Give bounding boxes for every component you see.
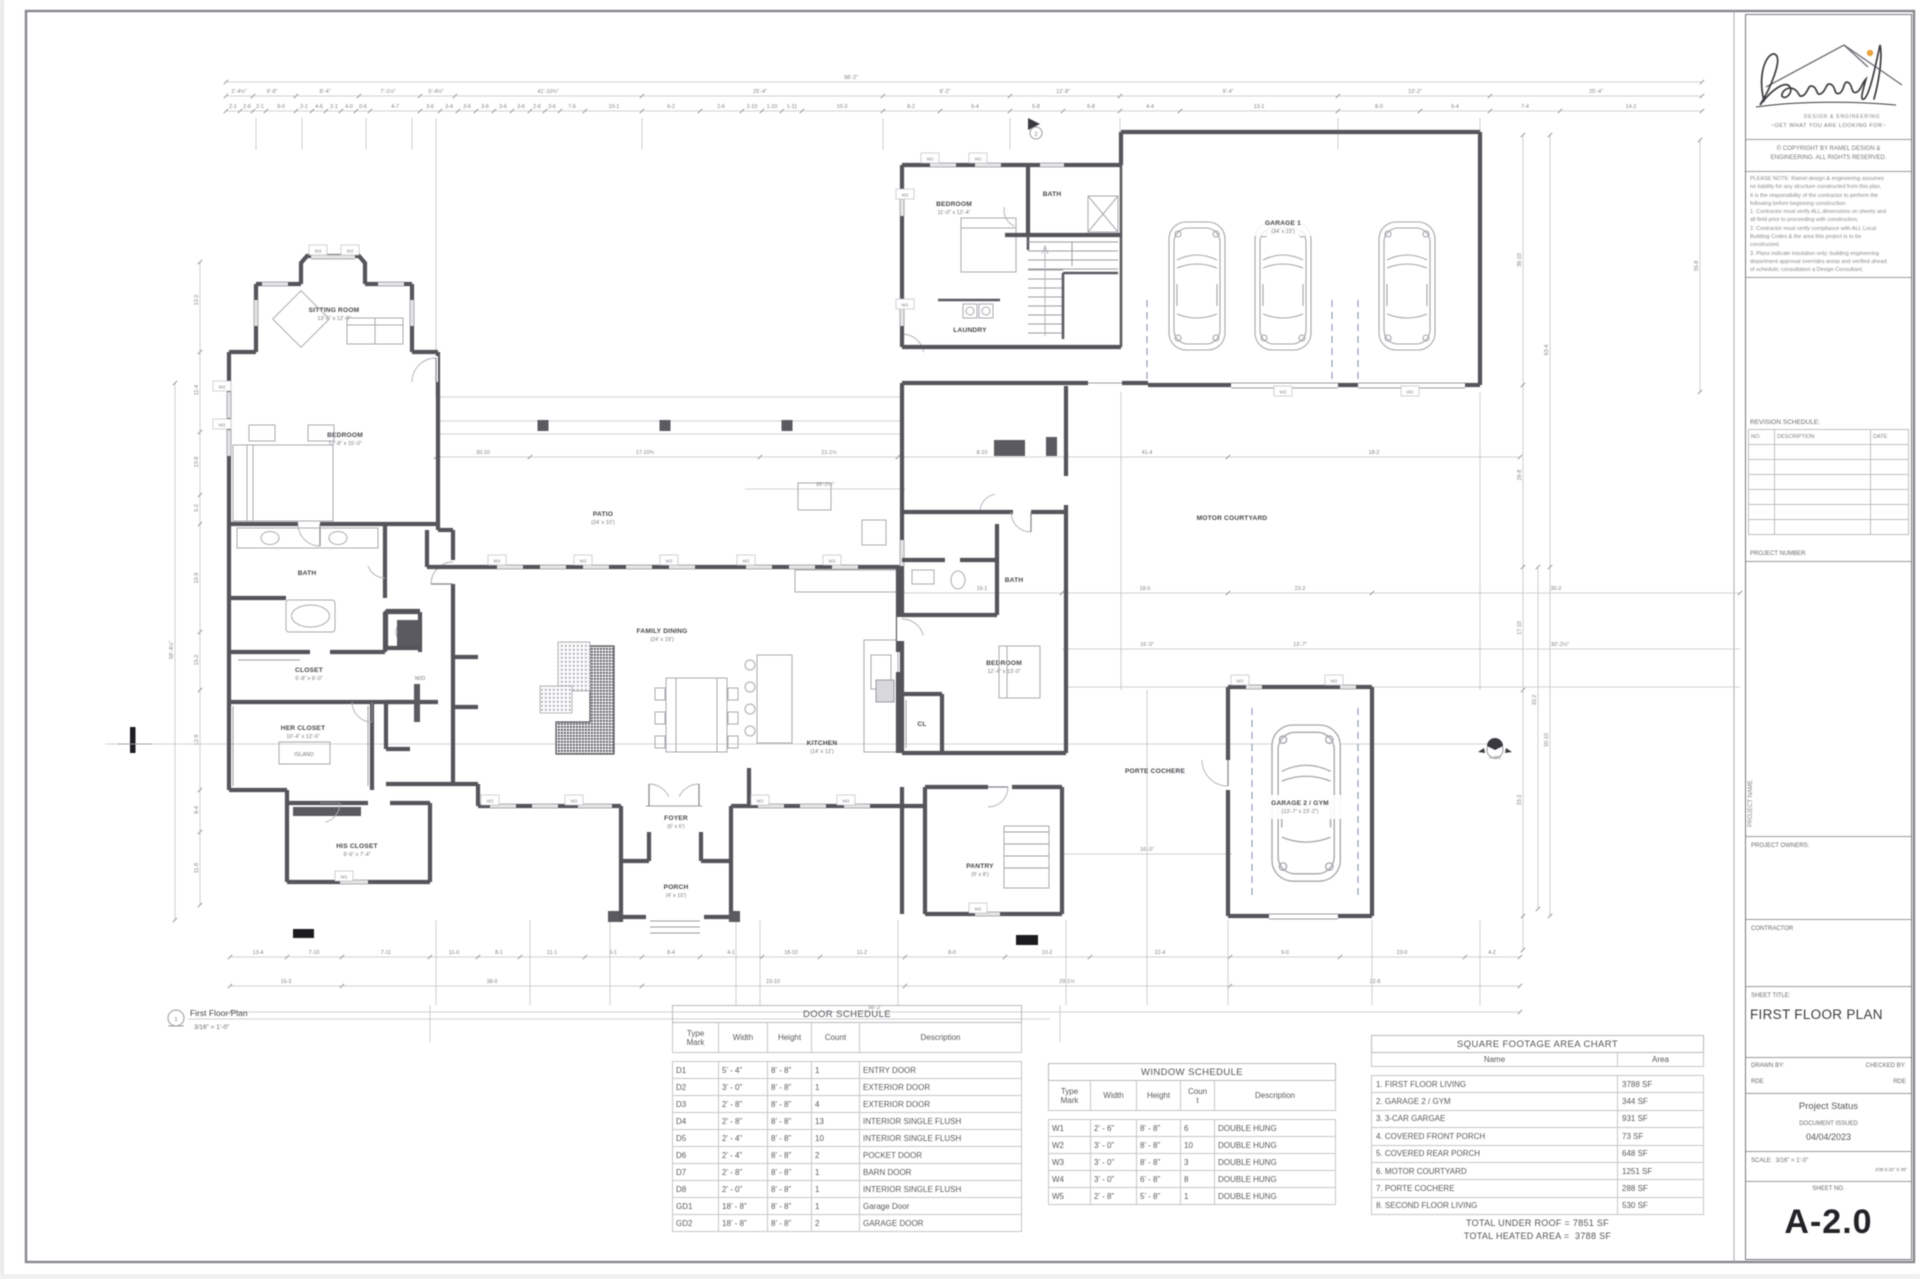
svg-text:MOTOR COURTYARD: MOTOR COURTYARD [1197, 515, 1268, 522]
svg-text:38-0: 38-0 [487, 979, 498, 985]
svg-text:41-4: 41-4 [1142, 450, 1153, 456]
svg-text:41’-10¾”: 41’-10¾” [537, 89, 558, 95]
svg-text:4-0: 4-0 [345, 104, 353, 110]
svg-text:4-7: 4-7 [391, 104, 399, 110]
svg-text:10-9: 10-9 [194, 573, 200, 584]
svg-text:2-6: 2-6 [243, 104, 251, 110]
svg-text:7’-1½”: 7’-1½” [380, 88, 395, 95]
svg-text:6-8: 6-8 [1087, 104, 1095, 110]
svg-text:W2: W2 [1237, 679, 1244, 684]
svg-text:15-3: 15-3 [281, 979, 292, 985]
svg-text:2: 2 [1035, 132, 1038, 138]
svg-text:BATH: BATH [1043, 191, 1062, 198]
svg-text:3-4: 3-4 [445, 104, 453, 110]
svg-text:W2: W2 [829, 559, 836, 564]
svg-text:8-1: 8-1 [495, 950, 503, 956]
svg-text:8-2: 8-2 [907, 104, 915, 110]
svg-text:18-2: 18-2 [1369, 450, 1380, 456]
svg-text:(24’ x 10’): (24’ x 10’) [591, 520, 615, 526]
svg-text:18-0: 18-0 [1140, 586, 1151, 592]
svg-text:29-1½: 29-1½ [1059, 978, 1075, 985]
svg-text:3-6: 3-6 [548, 104, 556, 110]
svg-text:13-8: 13-8 [194, 457, 200, 468]
svg-text:10-3: 10-3 [837, 104, 848, 110]
svg-text:16’-0”: 16’-0” [1140, 642, 1154, 648]
svg-text:98’-2”: 98’-2” [844, 75, 858, 81]
svg-text:1-11: 1-11 [787, 104, 797, 110]
svg-text:W2: W2 [1331, 679, 1338, 684]
svg-text:22-4: 22-4 [1155, 950, 1166, 956]
svg-text:CL: CL [917, 721, 926, 728]
svg-text:13’-7”: 13’-7” [1293, 642, 1307, 648]
svg-text:(24’ x 19’): (24’ x 19’) [650, 637, 674, 643]
svg-text:7-11: 7-11 [381, 950, 391, 956]
svg-text:15-2: 15-2 [194, 655, 200, 666]
svg-text:13-2: 13-2 [194, 295, 200, 306]
svg-text:7-4: 7-4 [1521, 104, 1529, 110]
svg-text:18-10: 18-10 [784, 950, 798, 956]
svg-text:W2: W2 [219, 385, 226, 390]
svg-text:1-10: 1-10 [767, 104, 778, 110]
svg-text:W2: W2 [580, 559, 587, 564]
svg-text:6-4: 6-4 [1451, 104, 1459, 110]
svg-text:2-1: 2-1 [300, 104, 308, 110]
svg-text:8-10: 8-10 [977, 450, 988, 456]
svg-text:W2: W2 [927, 157, 934, 162]
svg-text:36-10: 36-10 [1517, 253, 1523, 267]
svg-text:1: 1 [175, 1017, 178, 1023]
svg-text:DESIGN & ENGINEERING: DESIGN & ENGINEERING [1804, 114, 1880, 120]
svg-text:3-6: 3-6 [517, 104, 525, 110]
svg-text:22-8: 22-8 [1370, 979, 1381, 985]
svg-text:8-0: 8-0 [948, 950, 956, 956]
svg-text:2-1: 2-1 [330, 104, 338, 110]
svg-text:35-8: 35-8 [1694, 261, 1700, 272]
svg-text:W2: W2 [219, 423, 226, 428]
svg-text:W2: W2 [1280, 390, 1287, 395]
svg-text:30’-2½”: 30’-2½” [1551, 641, 1569, 648]
svg-text:GARAGE 1: GARAGE 1 [1265, 220, 1301, 227]
svg-text:10-2: 10-2 [1042, 950, 1053, 956]
svg-text:17-10: 17-10 [1517, 621, 1523, 635]
svg-text:(5’ x 6’): (5’ x 6’) [667, 824, 685, 830]
svg-text:LAUNDRY: LAUNDRY [953, 327, 987, 334]
svg-text:(34’ x 23’): (34’ x 23’) [1271, 229, 1295, 235]
svg-text:PANTRY: PANTRY [966, 863, 994, 870]
svg-text:8’-4”: 8’-4” [320, 89, 331, 95]
svg-text:26-8: 26-8 [1517, 470, 1523, 481]
svg-text:W2: W2 [1407, 390, 1414, 395]
svg-text:BEDROOM: BEDROOM [327, 432, 363, 439]
svg-text:8’-2”: 8’-2” [940, 89, 951, 95]
svg-text:25’-4”: 25’-4” [753, 89, 767, 95]
svg-text:11’-0” x 12’-4”: 11’-0” x 12’-4” [938, 210, 971, 216]
svg-text:BEDROOM: BEDROOM [986, 660, 1022, 667]
svg-text:KITCHEN: KITCHEN [807, 740, 838, 747]
svg-text:W2: W2 [743, 559, 750, 564]
svg-text:25’-4”: 25’-4” [1589, 89, 1603, 95]
svg-text:GARAGE 2 / GYM: GARAGE 2 / GYM [1271, 800, 1329, 807]
svg-text:11-8: 11-8 [194, 863, 200, 873]
svg-text:21-1½: 21-1½ [821, 449, 837, 456]
svg-text:13-4: 13-4 [253, 950, 264, 956]
svg-text:8-0: 8-0 [1375, 104, 1383, 110]
svg-text:W2: W2 [975, 157, 982, 162]
svg-text:5-2: 5-2 [194, 504, 200, 512]
svg-text:13’-2”: 13’-2” [1408, 89, 1422, 95]
svg-text:2-1: 2-1 [229, 104, 237, 110]
svg-text:W2: W2 [347, 249, 354, 254]
svg-text:12’-4” x 13’-0”: 12’-4” x 13’-0” [987, 669, 1020, 675]
svg-text:W/D: W/D [415, 676, 426, 682]
svg-text:(9’ x 8’): (9’ x 8’) [971, 872, 989, 878]
svg-text:3-6: 3-6 [481, 104, 489, 110]
svg-text:16-1: 16-1 [977, 586, 988, 592]
svg-text:10-1: 10-1 [609, 104, 620, 110]
svg-text:30-10: 30-10 [476, 450, 490, 456]
svg-text:2-10: 2-10 [747, 104, 758, 110]
svg-text:8-4: 8-4 [667, 950, 675, 956]
svg-text:9’-4”: 9’-4” [1223, 89, 1234, 95]
svg-text:58’-4½”: 58’-4½” [168, 641, 175, 659]
svg-text:36’-2½”: 36’-2½” [816, 481, 834, 488]
svg-text:BEDROOM: BEDROOM [936, 201, 972, 208]
svg-text:6-4: 6-4 [971, 104, 979, 110]
svg-text:7-6: 7-6 [568, 104, 576, 110]
svg-text:11-1: 11-1 [547, 950, 557, 956]
svg-text:BATH: BATH [1005, 577, 1024, 584]
svg-text:FAMILY DINING: FAMILY DINING [637, 628, 688, 635]
svg-text:(4’ x 10’): (4’ x 10’) [666, 893, 687, 899]
svg-text:23-2: 23-2 [1295, 586, 1306, 592]
svg-text:ISLAND: ISLAND [294, 752, 314, 758]
svg-text:W2: W2 [341, 875, 348, 880]
svg-text:6-2: 6-2 [667, 104, 675, 110]
svg-text:2-6: 2-6 [533, 104, 541, 110]
svg-text:W2: W2 [666, 559, 673, 564]
svg-text:HIS CLOSET: HIS CLOSET [336, 843, 378, 850]
svg-text:4-4: 4-4 [1146, 104, 1154, 110]
svg-text:23-10: 23-10 [766, 979, 780, 985]
svg-text:W2: W2 [902, 303, 909, 308]
svg-text:2-6: 2-6 [717, 104, 725, 110]
svg-text:W2: W2 [315, 249, 322, 254]
svg-text:W2: W2 [757, 799, 764, 804]
svg-text:FOYER: FOYER [664, 815, 688, 822]
svg-text:BATH: BATH [298, 570, 317, 577]
svg-text:SITTING ROOM: SITTING ROOM [309, 307, 360, 314]
svg-text:PORCH: PORCH [664, 884, 689, 891]
svg-text:2’-4½”: 2’-4½” [231, 88, 246, 95]
svg-text:11-2: 11-2 [857, 950, 867, 956]
svg-text:11-4: 11-4 [194, 385, 200, 395]
svg-text:23-0: 23-0 [1397, 950, 1408, 956]
svg-text:(14’ x 12’): (14’ x 12’) [810, 749, 834, 755]
svg-text:W2: W2 [843, 799, 850, 804]
svg-text:W2: W2 [487, 799, 494, 804]
svg-text:11-0: 11-0 [449, 950, 459, 956]
svg-text:3-6: 3-6 [463, 104, 471, 110]
svg-text:5’-4½”: 5’-4½” [428, 88, 443, 95]
svg-text:PATIO: PATIO [593, 511, 613, 518]
svg-text:W2: W2 [571, 799, 578, 804]
svg-text:50-10: 50-10 [1544, 733, 1550, 747]
svg-text:4-2: 4-2 [1488, 950, 1496, 956]
svg-text:5-8: 5-8 [1032, 104, 1040, 110]
svg-text:13-1: 13-1 [1254, 104, 1265, 110]
svg-text:3-6: 3-6 [499, 104, 507, 110]
svg-text:W2: W2 [902, 193, 909, 198]
svg-text:9-0: 9-0 [277, 104, 285, 110]
svg-text:4-6: 4-6 [315, 104, 323, 110]
svg-text:5’-8” x 6’-0”: 5’-8” x 6’-0” [295, 676, 322, 682]
svg-text:PORTE COCHERE: PORTE COCHERE [1125, 768, 1186, 775]
svg-text:0-6: 0-6 [359, 104, 367, 110]
svg-text:HER CLOSET: HER CLOSET [281, 725, 326, 732]
svg-text:13’-6” x 12’-0”: 13’-6” x 12’-0” [317, 316, 350, 322]
svg-text:8-4: 8-4 [194, 806, 200, 814]
svg-text:W2: W2 [494, 559, 501, 564]
svg-text:4-1: 4-1 [727, 950, 735, 956]
svg-text:A-202: A-202 [1489, 755, 1502, 760]
svg-text:2-1: 2-1 [256, 104, 264, 110]
svg-text:7-10: 7-10 [309, 950, 320, 956]
svg-text:3/16” = 1’-0”: 3/16” = 1’-0” [194, 1024, 229, 1031]
svg-text:33-2: 33-2 [1532, 695, 1538, 706]
svg-text:3-6: 3-6 [426, 104, 434, 110]
svg-text:CLOSET: CLOSET [295, 667, 323, 674]
svg-text:(13’-7” x 23’-2”): (13’-7” x 23’-2”) [1282, 809, 1319, 815]
svg-text:9’-8”: 9’-8” [267, 89, 278, 95]
svg-text:9-0: 9-0 [1281, 950, 1289, 956]
svg-text:12’-8”: 12’-8” [1056, 89, 1070, 95]
svg-text:17-10¾: 17-10¾ [636, 450, 655, 456]
svg-text:First Floor Plan: First Floor Plan [190, 1008, 248, 1018]
svg-text:63-4: 63-4 [1544, 345, 1550, 356]
svg-text:9’-6” x 7’-4”: 9’-6” x 7’-4” [343, 852, 370, 858]
svg-text:30-2: 30-2 [1551, 586, 1562, 592]
svg-text:14-2: 14-2 [1626, 104, 1637, 110]
svg-text:33-2: 33-2 [1517, 795, 1523, 806]
svg-text:10’-4” x 12’-6”: 10’-4” x 12’-6” [286, 734, 319, 740]
svg-text:W2: W2 [975, 907, 982, 912]
